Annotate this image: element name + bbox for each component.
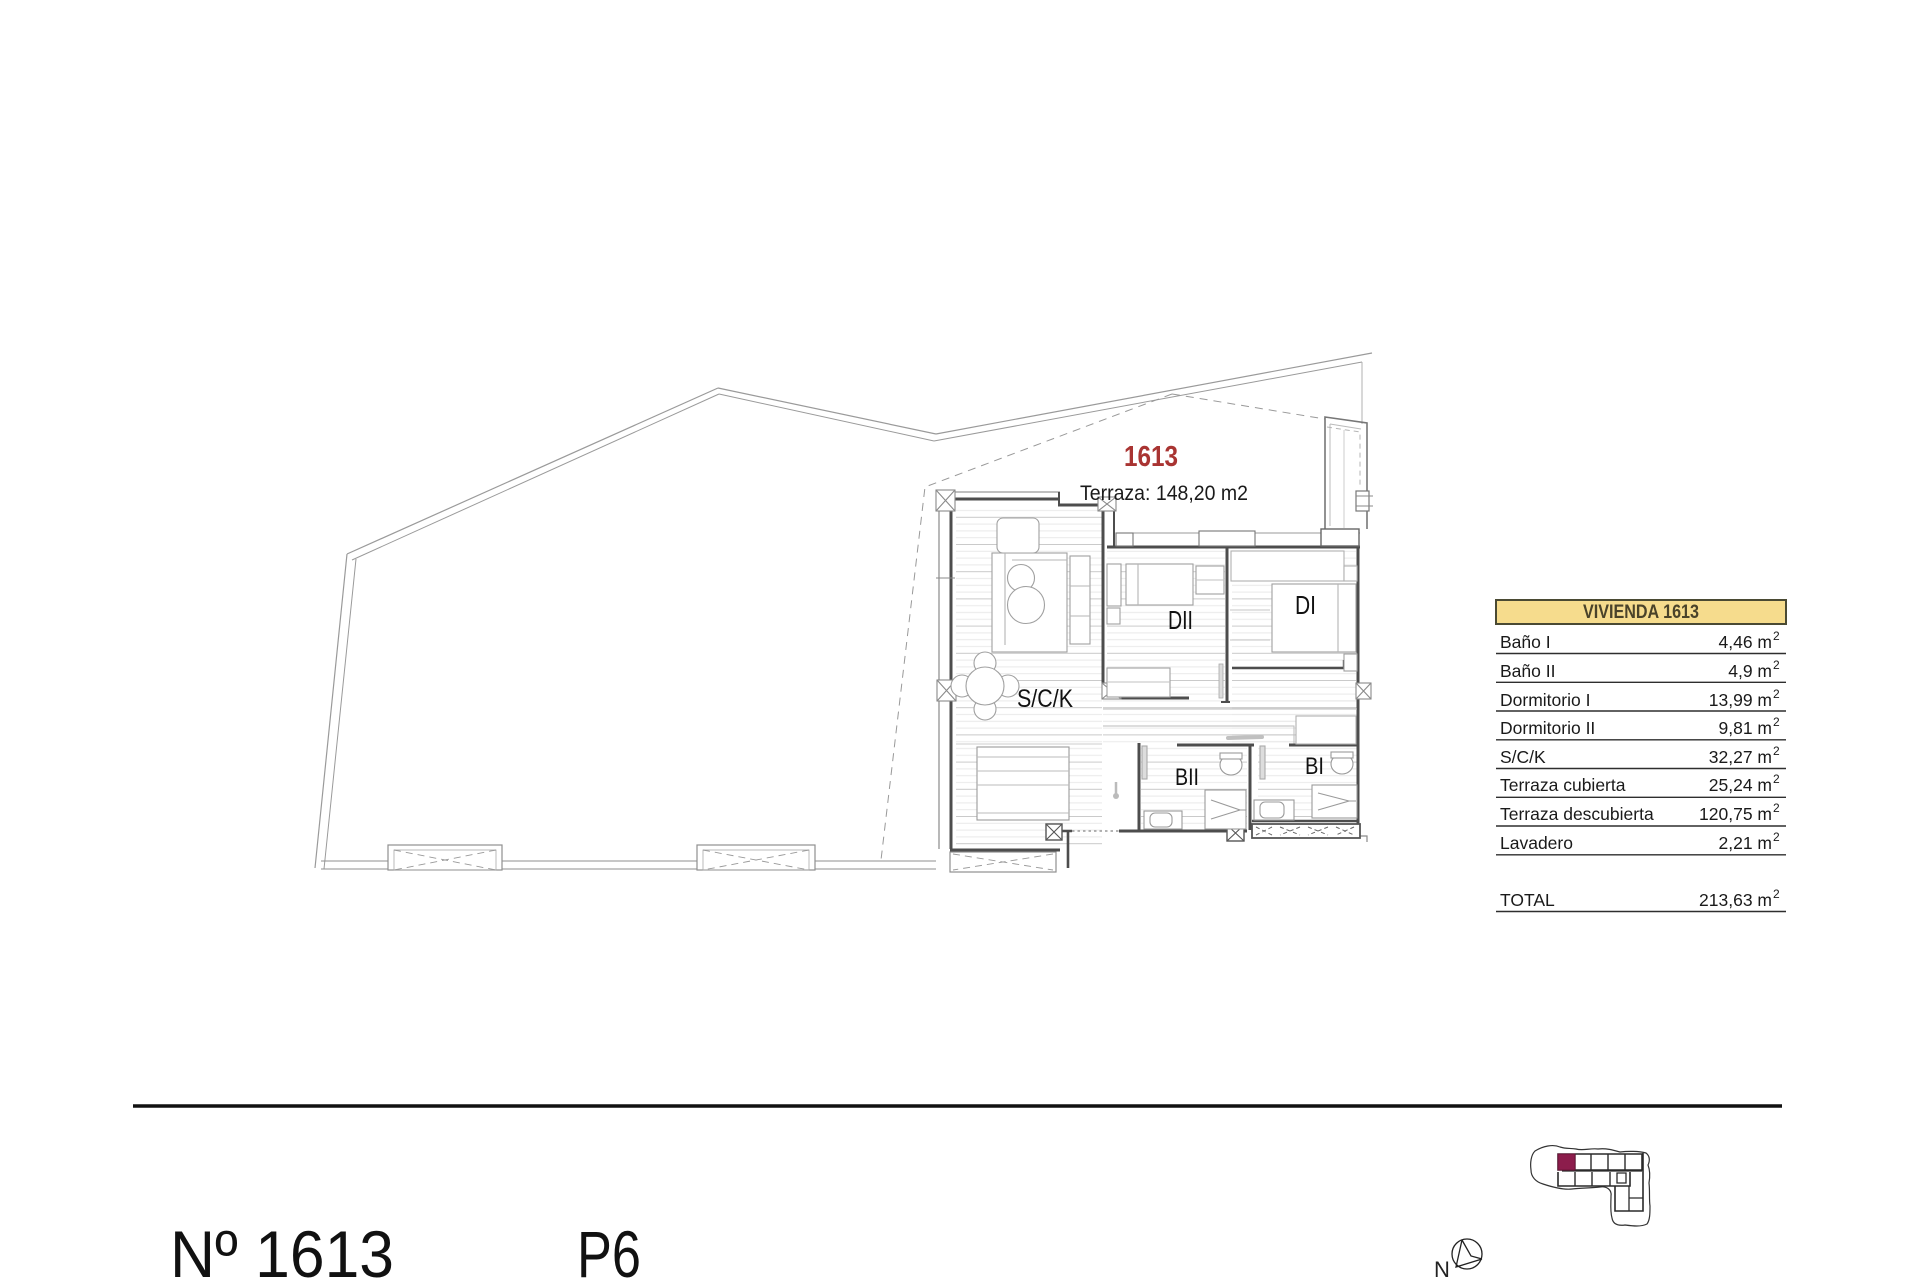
svg-text:213,63 m: 213,63 m <box>1699 890 1772 910</box>
svg-text:1613: 1613 <box>1124 441 1178 473</box>
svg-text:Dormitorio I: Dormitorio I <box>1500 690 1590 710</box>
svg-text:2: 2 <box>1773 629 1780 643</box>
svg-text:2: 2 <box>1773 658 1780 672</box>
svg-text:Baño II: Baño II <box>1500 661 1555 681</box>
svg-text:2,21 m: 2,21 m <box>1719 833 1773 853</box>
svg-text:2: 2 <box>1773 801 1780 815</box>
svg-text:Dormitorio II: Dormitorio II <box>1500 718 1595 738</box>
svg-text:Terraza descubierta: Terraza descubierta <box>1500 804 1654 824</box>
svg-text:120,75 m: 120,75 m <box>1699 804 1772 824</box>
svg-text:4,9 m: 4,9 m <box>1728 661 1772 681</box>
svg-text:2: 2 <box>1773 887 1780 901</box>
svg-text:25,24 m: 25,24 m <box>1709 775 1772 795</box>
svg-text:4,46 m: 4,46 m <box>1719 632 1773 652</box>
svg-text:Nº 1613: Nº 1613 <box>170 1217 394 1280</box>
svg-text:2: 2 <box>1773 830 1780 844</box>
svg-text:DI: DI <box>1295 590 1316 620</box>
svg-text:Terraza: 148,20 m2: Terraza: 148,20 m2 <box>1080 482 1248 505</box>
svg-text:Baño I: Baño I <box>1500 632 1551 652</box>
svg-text:2: 2 <box>1773 715 1780 729</box>
svg-text:S/C/K: S/C/K <box>1500 747 1546 767</box>
svg-text:DII: DII <box>1168 605 1193 635</box>
svg-text:TOTAL: TOTAL <box>1500 890 1555 910</box>
svg-text:2: 2 <box>1773 687 1780 701</box>
svg-text:BI: BI <box>1305 753 1324 780</box>
svg-text:Terraza cubierta: Terraza cubierta <box>1500 775 1626 795</box>
svg-text:2: 2 <box>1773 772 1780 786</box>
svg-text:9,81 m: 9,81 m <box>1719 718 1773 738</box>
svg-text:BII: BII <box>1175 764 1199 791</box>
svg-text:2: 2 <box>1773 744 1780 758</box>
svg-text:VIVIENDA 1613: VIVIENDA 1613 <box>1583 602 1699 623</box>
svg-text:S/C/K: S/C/K <box>1017 685 1073 713</box>
svg-text:Lavadero: Lavadero <box>1500 833 1573 853</box>
svg-text:P6: P6 <box>577 1217 641 1280</box>
svg-text:N: N <box>1434 1257 1450 1280</box>
svg-text:13,99 m: 13,99 m <box>1709 690 1772 710</box>
svg-text:32,27 m: 32,27 m <box>1709 747 1772 767</box>
